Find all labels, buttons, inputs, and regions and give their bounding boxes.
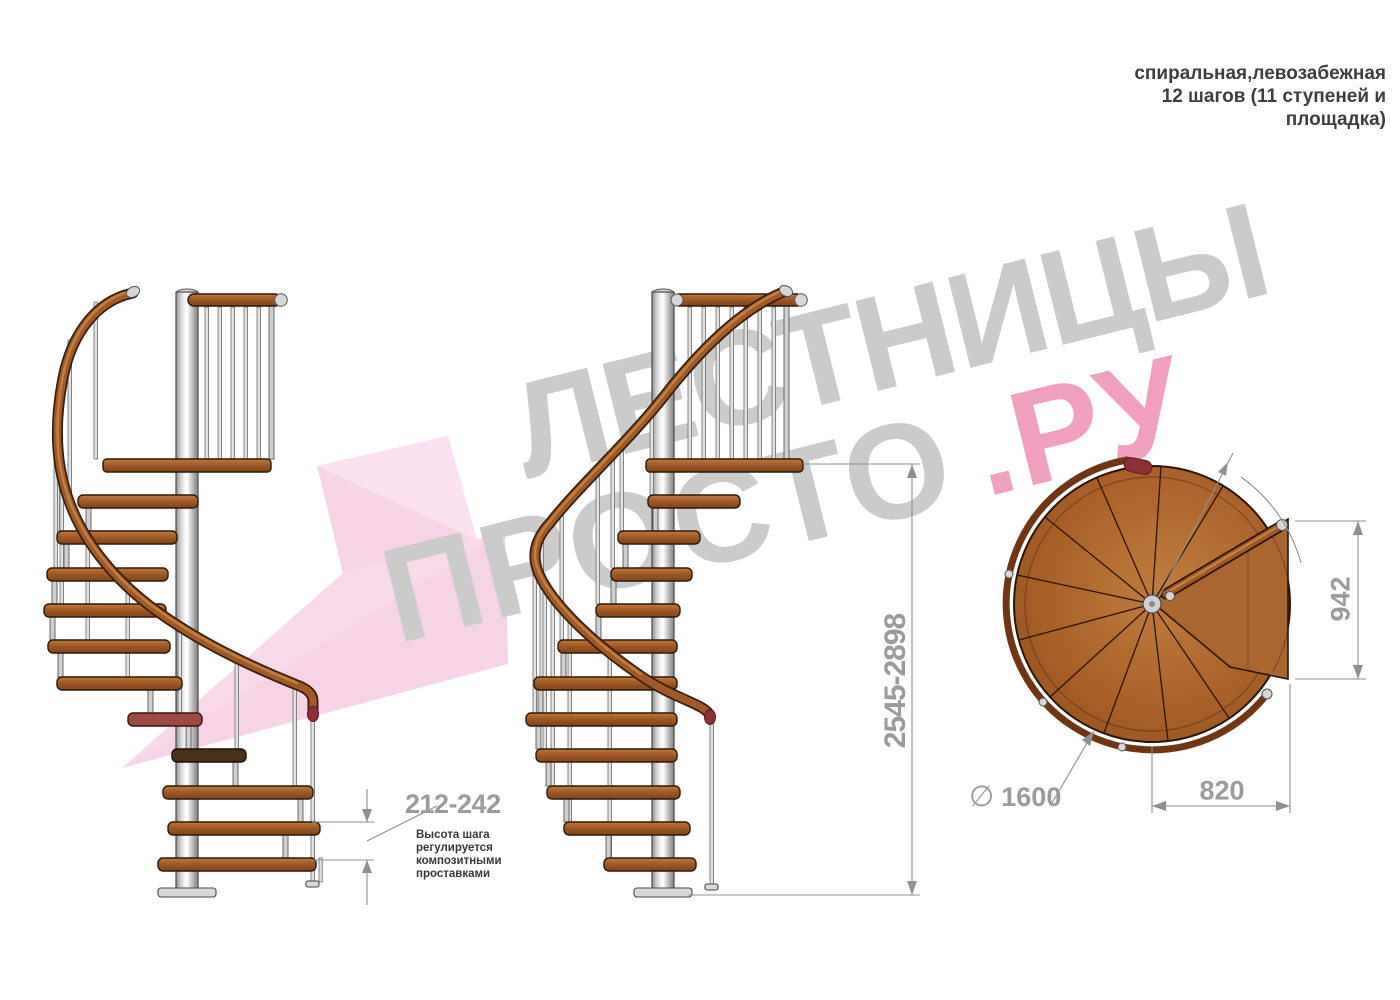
plan-handrail-end-cap	[1262, 689, 1272, 699]
plan-baluster-dot	[1118, 743, 1126, 751]
plan-baluster-dot	[1039, 698, 1047, 706]
staircase-drawing	[0, 0, 1400, 1000]
left-staircase-elevation	[44, 284, 322, 897]
center-column	[176, 292, 198, 890]
tread	[172, 749, 246, 762]
rail-end-cap	[671, 294, 683, 306]
tread	[596, 604, 680, 617]
drawing-sheet: ЛЕСТНИЦЫ ПРОСТО.РУ	[0, 0, 1400, 1000]
tread	[618, 531, 700, 544]
tread	[158, 858, 316, 871]
platform-balusters	[205, 303, 274, 459]
rail-end-cap	[275, 294, 288, 307]
tread	[128, 713, 202, 726]
plan-view	[1005, 456, 1290, 751]
plan-center-column-core	[1149, 601, 1155, 607]
plan-baluster-dot	[1005, 570, 1013, 578]
tread	[611, 568, 692, 581]
tread	[526, 713, 677, 726]
tread	[48, 640, 170, 653]
tread	[57, 531, 177, 544]
tread	[604, 858, 696, 871]
rail-end-cap	[795, 294, 808, 307]
platform-board	[103, 459, 271, 472]
plan-handrail-end-cap	[1277, 520, 1288, 531]
middle-staircase-elevation	[526, 283, 920, 897]
platform-top-rail	[188, 294, 281, 306]
column-base-flange	[158, 888, 216, 897]
baluster-foot	[306, 881, 319, 887]
rail-end-cap-maroon	[705, 710, 716, 725]
plan-baluster-dot	[1166, 592, 1175, 601]
tread	[547, 786, 680, 799]
rail-end-cap-maroon	[308, 707, 319, 722]
tread	[78, 495, 198, 508]
platform-balusters	[688, 303, 789, 459]
tread	[163, 786, 313, 799]
tread	[558, 640, 677, 653]
tread	[564, 822, 690, 835]
column-base-flange	[634, 888, 692, 897]
platform-board	[646, 459, 803, 472]
tread	[536, 749, 677, 762]
tread	[648, 495, 740, 508]
baluster-foot	[705, 884, 718, 890]
tread	[168, 822, 320, 835]
tread	[57, 677, 182, 690]
